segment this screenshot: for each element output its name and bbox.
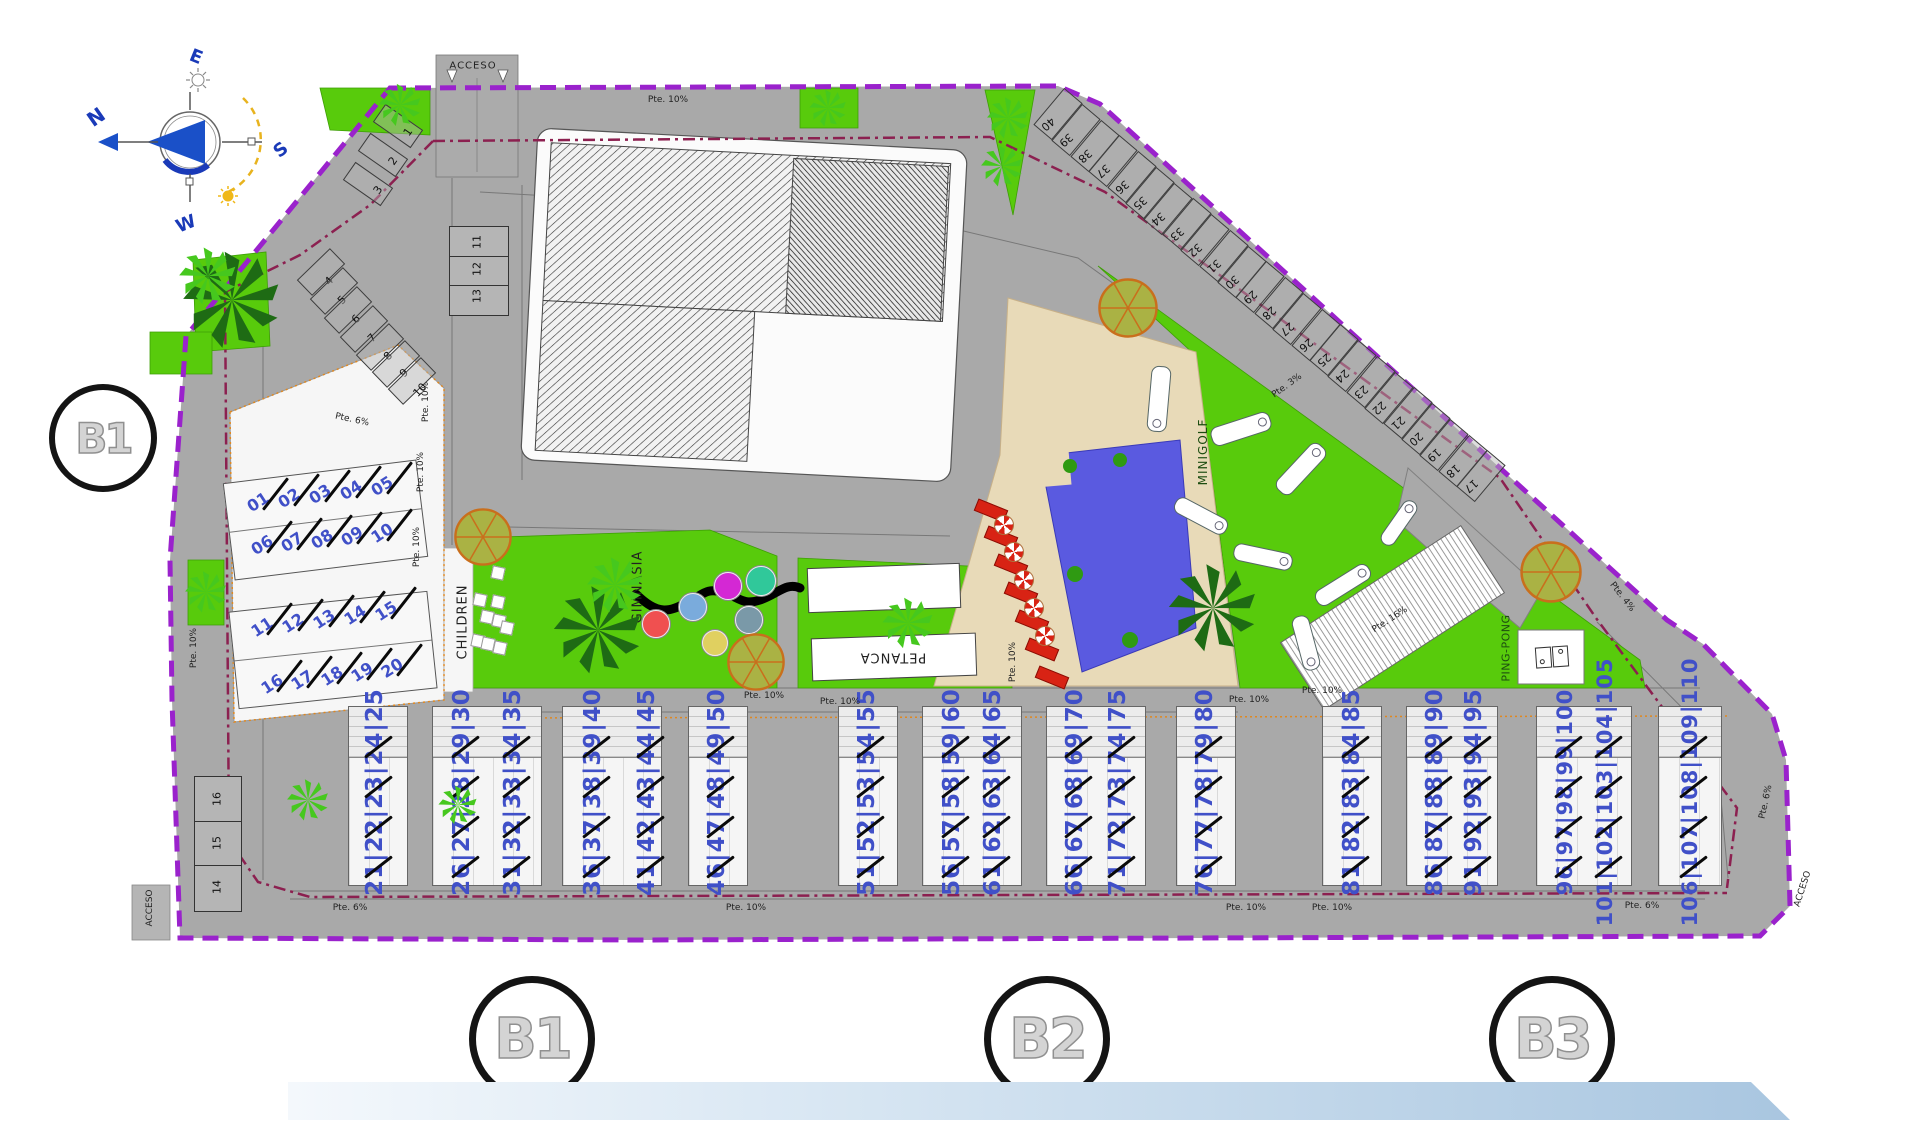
palm-tree-icon — [1166, 561, 1261, 656]
block-marker-left-b1: B1 — [49, 384, 157, 492]
minigolf-hole — [1310, 446, 1323, 459]
row-units-label: 56|57|58|59|60 — [939, 688, 965, 896]
row-units-label: 36|37|38|39|40 — [580, 688, 606, 896]
petanca-area-label: PETANCA — [860, 650, 927, 665]
parking-space-number: 11 — [471, 235, 484, 249]
row-units-label: 31|32|33|34|35 — [500, 688, 526, 896]
parking-space-number: 12 — [471, 262, 484, 276]
palm-tree-icon — [585, 555, 645, 615]
slope-label: Pte. 10% — [189, 628, 199, 668]
sun-icon — [218, 186, 238, 206]
block-marker-b1-label: B1 — [494, 1007, 570, 1072]
slope-label: Pte. 10% — [1229, 695, 1269, 705]
minigolf-hole — [1403, 502, 1416, 515]
sun-outline-icon — [186, 68, 210, 92]
block-marker-b2-label: B2 — [1009, 1007, 1085, 1072]
slope-label: Pte. 6% — [1625, 901, 1660, 911]
stall-divider — [195, 821, 241, 822]
tree-icon — [1097, 277, 1159, 339]
palm-tree-icon — [184, 570, 229, 615]
parasol-icon — [1004, 542, 1024, 562]
slope-label: Pte. 10% — [1226, 903, 1266, 913]
parasol-icon — [1024, 598, 1044, 618]
slope-label: Pte. 6% — [333, 903, 368, 913]
parasol-icon — [994, 515, 1014, 535]
palm-tree-icon — [980, 144, 1025, 189]
stepping-stone — [472, 592, 487, 607]
ping-pong-area — [1518, 630, 1584, 684]
row-units-label: 71|72|73|74|75 — [1105, 688, 1131, 896]
stepping-stone — [499, 620, 514, 635]
parking-space-number: 16 — [211, 792, 224, 806]
slope-label: Pte. 10% — [726, 903, 766, 913]
gym-pad-circle — [679, 593, 707, 621]
block-marker-b3-label: B3 — [1514, 1007, 1590, 1072]
stall-divider — [195, 865, 241, 866]
row-units-label: 66|67|68|69|70 — [1062, 688, 1088, 896]
minigolf-hole — [1306, 656, 1317, 667]
gym-pad-circle — [746, 566, 776, 596]
stall-divider — [450, 256, 508, 257]
gym-pad-circle — [714, 572, 742, 600]
decorative-bottom-bar — [288, 1082, 1790, 1120]
minigolf-hole — [1257, 416, 1268, 427]
palm-tree-icon — [377, 82, 423, 128]
row-units-label: 21|22|23|24|25 — [362, 688, 388, 896]
parking-space-number: 15 — [211, 836, 224, 850]
parking-space-number: 13 — [471, 289, 484, 303]
palm-tree-icon — [437, 784, 479, 826]
b1-building-midline — [235, 640, 432, 662]
gym-pad-circle — [735, 606, 763, 634]
palm-tree-icon — [986, 96, 1031, 141]
tree-icon — [726, 632, 786, 692]
stepping-stone — [492, 640, 507, 655]
row-units-label: 51|52|53|54|55 — [854, 688, 880, 896]
children-area-label: CHILDREN — [456, 585, 471, 660]
palm-tree-icon — [881, 596, 936, 651]
row-units-label: 76|77|78|79|80 — [1192, 688, 1218, 896]
access-label-top: ACCESO — [449, 61, 496, 72]
apartment-building — [521, 128, 968, 482]
access-label-bottom-left: ACCESO — [145, 889, 155, 926]
minigolf-hole — [1279, 556, 1290, 567]
slope-label: Pte. 10% — [820, 697, 860, 707]
tree-icon — [453, 507, 513, 567]
stepping-stone — [490, 565, 505, 580]
slope-label: Pte. 10% — [648, 95, 688, 105]
row-units-label: 86|87|88|89|90 — [1422, 688, 1448, 896]
minigolf-hole — [1213, 520, 1225, 532]
compass-rose-icon — [98, 68, 262, 206]
slope-label: Pte. 10% — [1302, 686, 1342, 696]
building-roof-dense — [786, 158, 949, 321]
row-units-label: 106|107|108|109|110 — [1678, 658, 1702, 927]
parking-space-number: 14 — [211, 880, 224, 894]
palm-tree-icon — [177, 245, 239, 307]
palm-tree-icon — [286, 778, 331, 823]
minigolf-hole — [1152, 419, 1162, 429]
parasol-icon — [1035, 626, 1055, 646]
minigolf-area-label: MINIGOLF — [1196, 419, 1210, 486]
block-marker-left-label: B1 — [75, 414, 130, 463]
row-units-label: 101|102|103|104|105 — [1593, 658, 1617, 927]
row-units-label: 61|62|63|64|65 — [980, 688, 1006, 896]
slope-label: Pte. 10% — [416, 452, 426, 492]
slope-label: Pte. 10% — [412, 527, 422, 567]
townhouse-roof — [923, 707, 1021, 758]
palm-tree-icon — [808, 88, 848, 128]
parasol-icon — [1014, 570, 1034, 590]
slope-label: Pte. 10% — [1008, 642, 1018, 682]
stall-divider — [450, 285, 508, 286]
slope-label: Pte. 10% — [1312, 903, 1352, 913]
pingpong-area-label: PING-PONG — [1500, 614, 1513, 681]
site-plan-canvas: N E S W ACCESO ACCESO ACCESO CHILDREN GI… — [0, 0, 1920, 1134]
minigolf-hole — [1356, 567, 1368, 579]
building-roof-leg — [535, 300, 755, 461]
row-units-label: 91|92|93|94|95 — [1461, 688, 1487, 896]
access-top-road — [436, 55, 518, 177]
row-units-label: 41|42|43|44|45 — [634, 688, 660, 896]
slope-label: Pte. 10% — [744, 691, 784, 701]
b1-unit-building — [228, 591, 437, 709]
gym-pad-circle — [702, 630, 728, 656]
stepping-stone — [490, 594, 505, 609]
row-units-label: 46|47|48|49|50 — [704, 688, 730, 896]
gym-pad-circle — [642, 610, 670, 638]
tree-icon — [1519, 540, 1583, 604]
row-units-label: 81|82|83|84|85 — [1339, 688, 1365, 896]
